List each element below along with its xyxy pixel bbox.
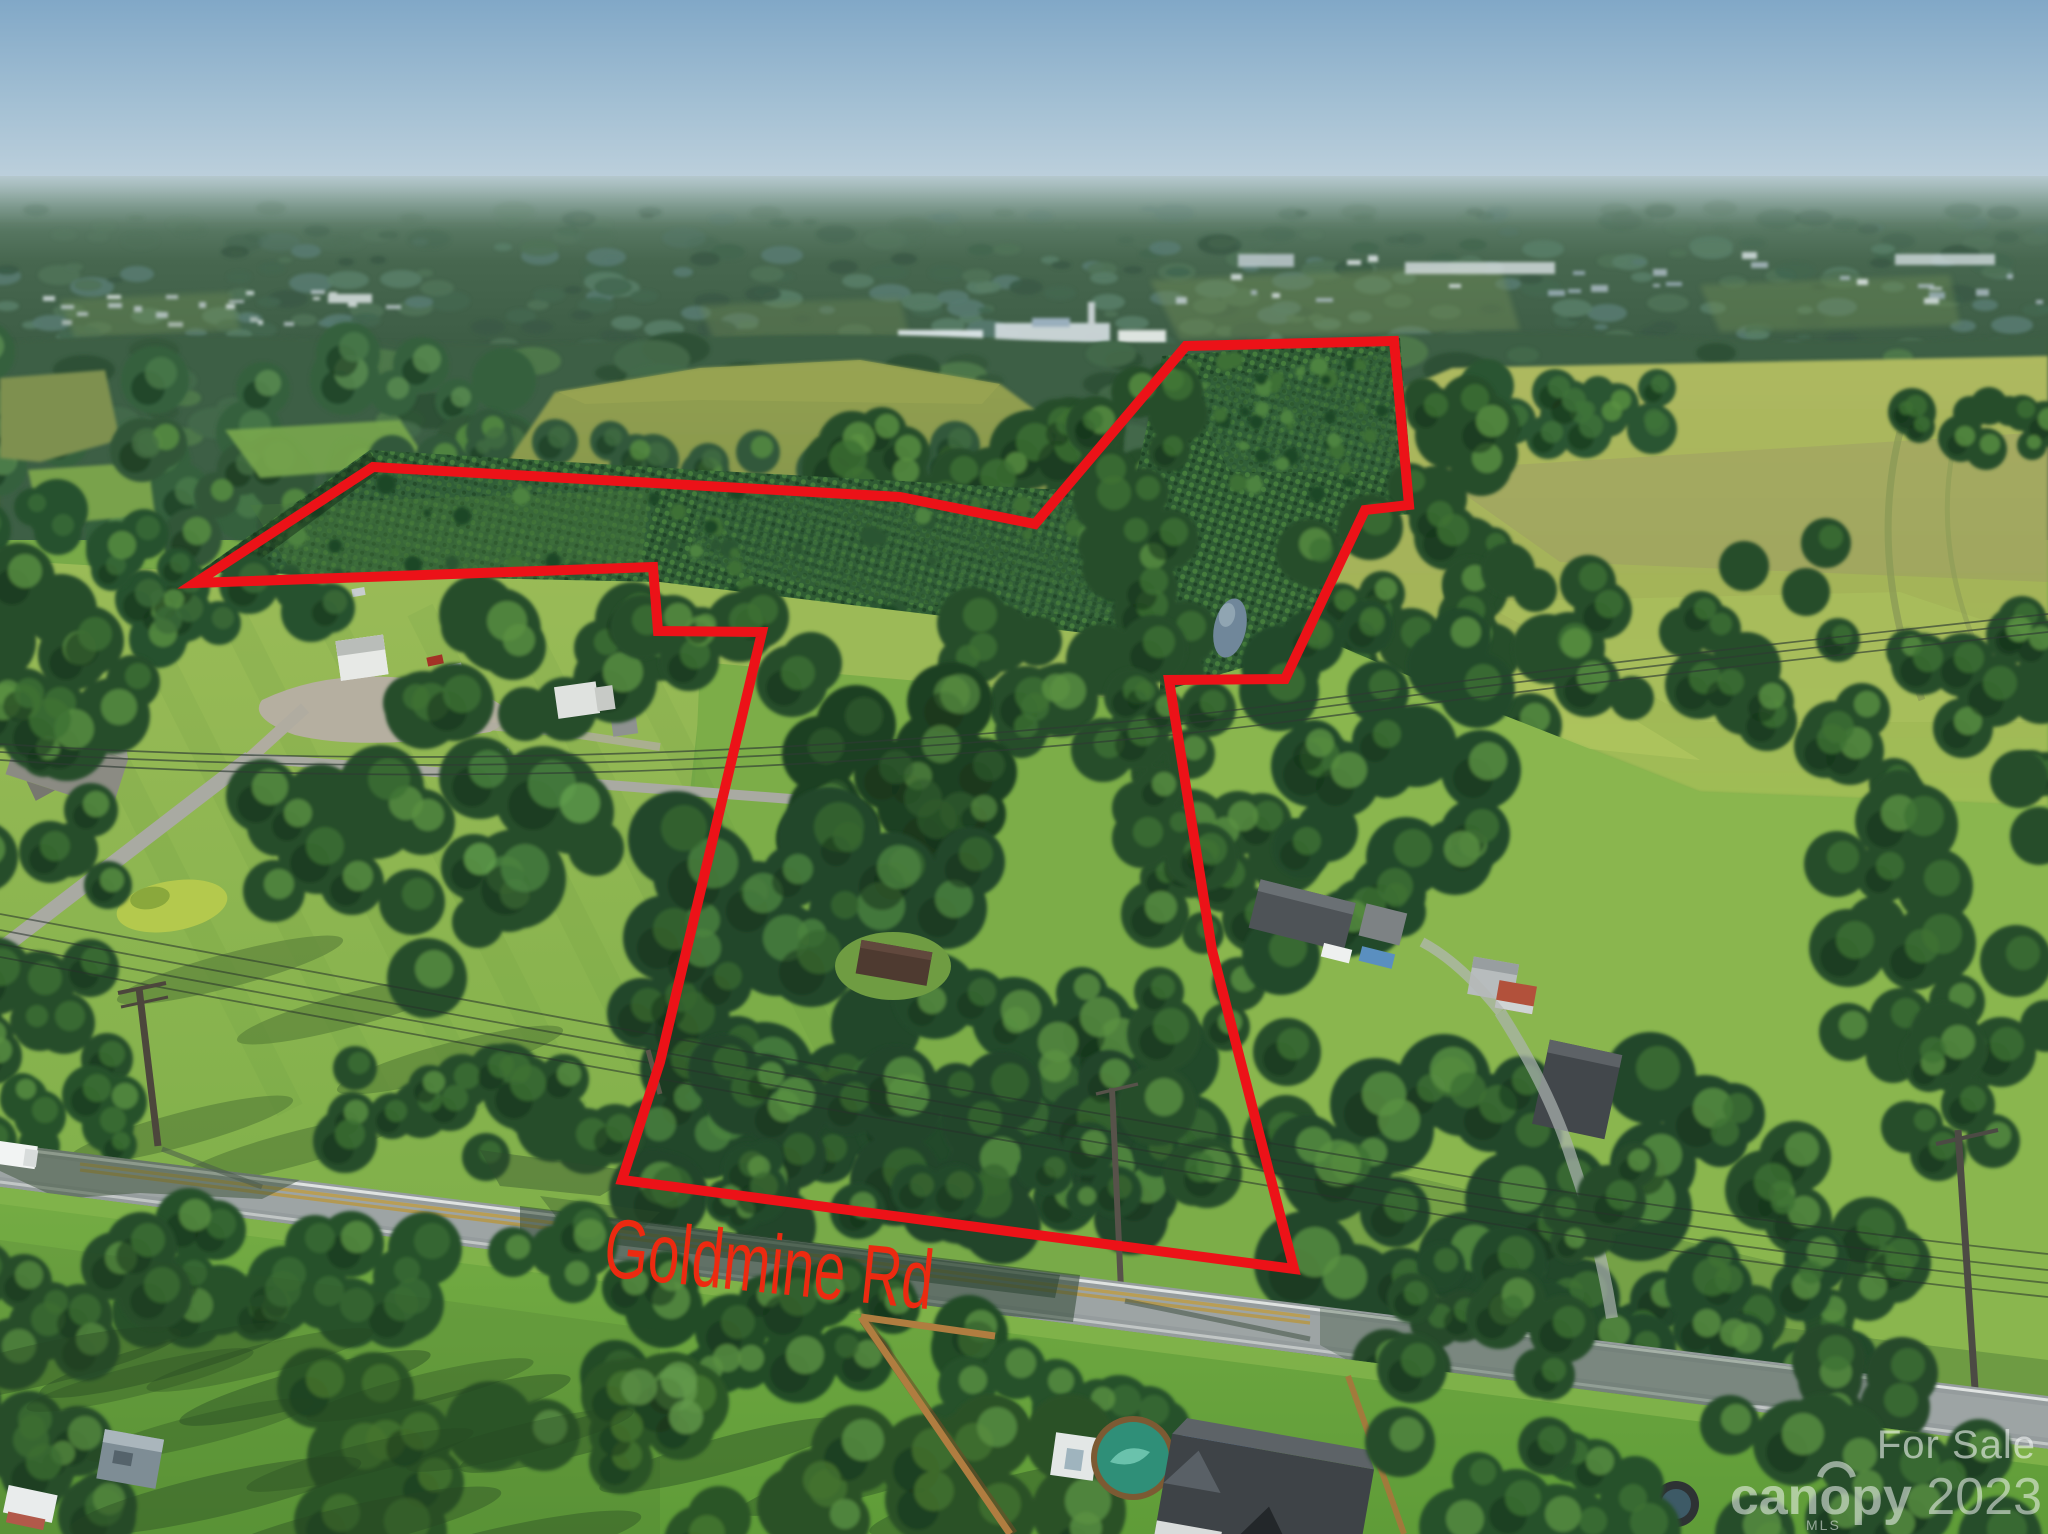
svg-text:MLS: MLS	[1806, 1517, 1841, 1533]
svg-text:canopy 2023: canopy 2023	[1730, 1468, 2042, 1526]
svg-text:For Sale: For Sale	[1877, 1423, 2036, 1467]
